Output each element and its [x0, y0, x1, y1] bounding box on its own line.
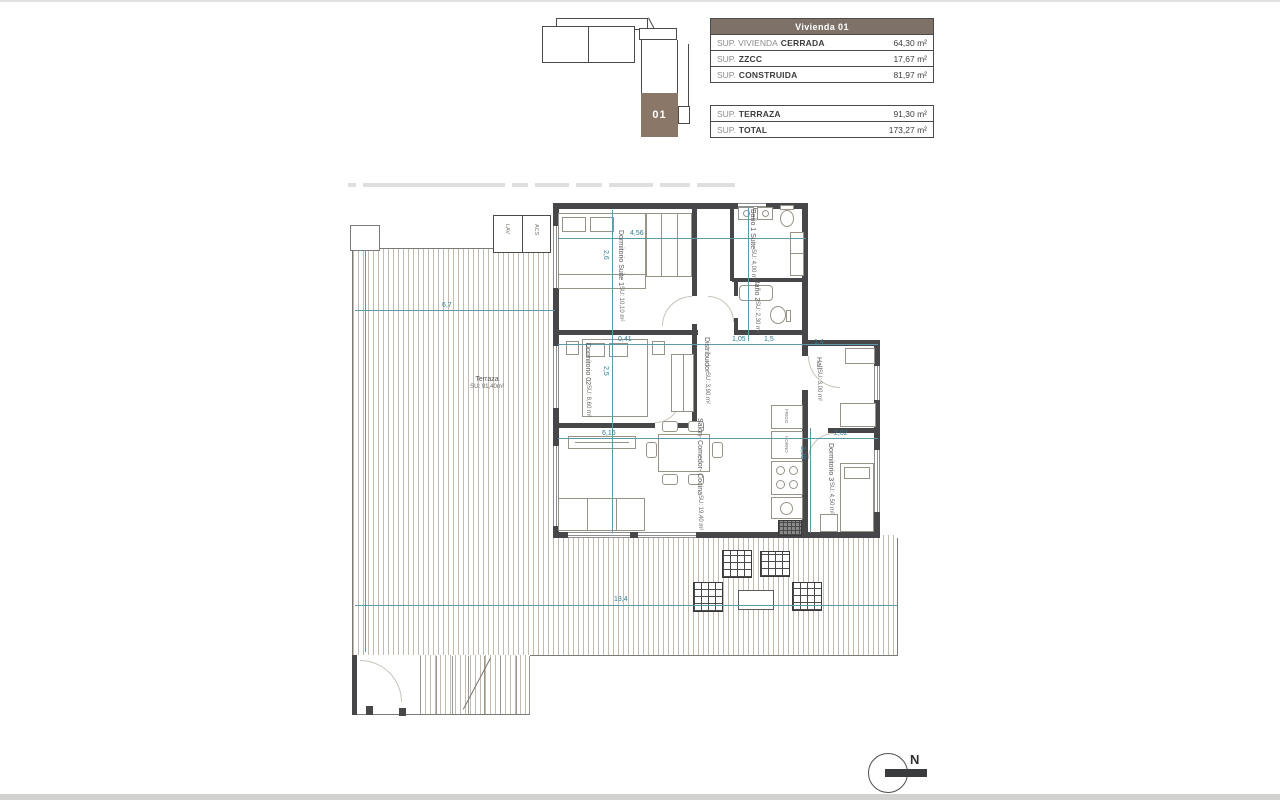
terrace-planter	[760, 551, 790, 577]
wardrobe-dorm02	[671, 354, 694, 412]
wall-segment	[553, 423, 655, 428]
glass-door	[638, 532, 696, 538]
terrace-table	[738, 590, 774, 610]
table-row: SUP. TERRAZA 91,30 m²	[711, 106, 933, 121]
key-plan-unit-label: 01	[652, 109, 666, 121]
table-row: SUP. VIVIENDA CERRADA 64,30 m²	[711, 34, 933, 50]
dimension-line	[365, 250, 366, 652]
utility-closet: LAV ACS	[493, 215, 551, 253]
terrace-edge-right	[897, 538, 898, 656]
window	[874, 450, 880, 512]
area-table-main: Vivienda 01 SUP. VIVIENDA CERRADA 64,30 …	[710, 18, 934, 83]
north-arrow-bar	[885, 769, 927, 777]
dining-chair	[712, 442, 723, 458]
row-label: CERRADA	[781, 38, 825, 48]
wall-segment	[734, 282, 738, 296]
area-table-totals: SUP. TERRAZA 91,30 m² SUP. TOTAL 173,27 …	[710, 105, 934, 138]
window	[874, 366, 880, 400]
wall-segment	[734, 330, 808, 335]
row-label: CONSTRUIDA	[739, 70, 798, 80]
area-table: Vivienda 01 SUP. VIVIENDA CERRADA 64,30 …	[710, 18, 934, 138]
floor-plan: LAV ACS	[340, 178, 916, 744]
plan-sheet: { "sheet": {"title": "Vivienda 01"}, "ke…	[0, 0, 1280, 800]
page-bottom-edge	[0, 794, 1280, 800]
row-value: 91,30 m²	[893, 109, 927, 119]
room-label-dormitorio02: Dormitorio 02 SU: 8,60 m²	[583, 340, 591, 420]
hall-closet	[845, 348, 875, 364]
row-prefix: SUP.	[717, 70, 736, 80]
dining-chair	[662, 421, 678, 432]
gate-post	[399, 708, 406, 716]
room-label-salon-comedor-cocina: Salón- Comedor- Cocina SU: 19,40 m²	[695, 420, 703, 528]
row-value: 17,67 m²	[893, 54, 927, 64]
hall-bench	[840, 403, 876, 427]
room-label-dormitorio-suite1: Dormitorio Suite 1 SU: 10,10 m²	[616, 218, 624, 333]
terrace-planter	[792, 582, 822, 611]
north-label: N	[910, 752, 919, 767]
wall-segment	[802, 346, 808, 356]
row-prefix: SUP. VIVIENDA	[717, 38, 778, 48]
row-prefix: SUP.	[717, 125, 736, 135]
row-value: 81,97 m²	[893, 70, 927, 80]
terrace-planter	[722, 550, 752, 578]
terrace-planter	[693, 582, 723, 612]
bed-dorm3	[840, 463, 874, 532]
row-label: TERRAZA	[739, 109, 781, 119]
area-table-header: Vivienda 01	[711, 19, 933, 34]
key-plan-block-divider	[588, 26, 589, 63]
row-label: ZZCC	[739, 54, 762, 64]
bath2-toilet	[770, 306, 786, 324]
key-plan-unit-01: 01	[641, 93, 678, 137]
room-label-dormitorio3: Dormitorio 3 SU: 4,50 m²	[826, 436, 834, 521]
window	[568, 532, 630, 538]
table-row: SUP. CONSTRUIDA 81,97 m²	[711, 66, 933, 82]
dimension-label: 0,41	[618, 336, 632, 343]
terrace-edge-left	[352, 248, 353, 715]
dimension-line	[558, 238, 806, 239]
terrace-edge-bottom-low	[352, 714, 530, 715]
dimension-label: 1,4	[814, 339, 824, 346]
bed-dorm02	[582, 339, 648, 417]
dimension-label: 13,4	[614, 596, 628, 603]
dimension-line	[355, 605, 898, 606]
dimension-label: 6,16	[602, 430, 616, 437]
dimension-label: 2,6	[602, 250, 609, 260]
dimension-label: 1,5	[764, 336, 774, 343]
wall-segment	[352, 655, 357, 715]
wardrobe-suite1	[646, 213, 692, 277]
dimension-line	[810, 428, 811, 533]
wall-segment	[553, 330, 698, 335]
dining-chair	[646, 442, 657, 458]
dimension-label: 4,56	[630, 230, 644, 237]
dimension-label: 2,5	[602, 366, 609, 376]
wall-segment	[730, 203, 734, 281]
dimension-label: 1,05	[732, 336, 746, 343]
key-plan-unit-annex	[678, 106, 690, 124]
dining-chair	[662, 474, 678, 485]
fridge-label: FRIGO	[784, 409, 789, 423]
room-label-bano2: Baño 2 SU: 2,30 m²	[752, 278, 760, 334]
page-top-edge	[0, 0, 1280, 2]
dimension-line	[558, 344, 878, 345]
row-prefix: SUP.	[717, 109, 736, 119]
bath1-sink	[757, 207, 773, 220]
key-plan: 01	[530, 14, 705, 140]
row-prefix: SUP.	[717, 54, 736, 64]
kitchen-sink	[771, 497, 803, 519]
wall-segment	[692, 203, 697, 296]
key-plan-wing-line-right	[677, 40, 678, 93]
row-value: 64,30 m²	[893, 38, 927, 48]
room-label-distribuidor: Distribuidor SU: 3,90 m²	[702, 328, 710, 413]
sofa	[558, 498, 645, 531]
closet-label-lav: LAV	[504, 224, 509, 234]
cooktop	[771, 461, 803, 495]
bath2-toilet-tank	[786, 310, 791, 322]
faint-annotation-row	[348, 183, 908, 189]
dimension-line	[355, 310, 555, 311]
window	[553, 346, 559, 408]
terrace-corner-box	[350, 225, 380, 251]
dimension-line	[612, 210, 613, 532]
room-label-terraza: Terraza SU: 91,40m²	[445, 376, 529, 391]
closet-label-acs: ACS	[533, 224, 538, 235]
dimension-label: 2,02	[834, 430, 848, 437]
dimension-label: 3,35	[799, 446, 806, 460]
terrace-edge-bottom	[530, 655, 898, 656]
table-row: SUP. ZZCC 17,67 m²	[711, 50, 933, 66]
row-value: 173,27 m²	[889, 125, 927, 135]
key-plan-upper-right-block	[639, 28, 677, 40]
wall-segment	[732, 278, 808, 282]
kitchen-paved-square	[778, 520, 802, 536]
table-row: SUP. TOTAL 173,27 m²	[711, 121, 933, 137]
bath1-toilet	[780, 210, 794, 227]
north-compass: N	[864, 746, 936, 798]
dimension-label: 6,7	[442, 302, 452, 309]
room-label-hall: Hall SU: 3,00 m²	[814, 350, 822, 408]
gate-post	[366, 706, 373, 715]
room-label-bano1-suite: Baño 1 Suite SU: 4,00 m²	[748, 210, 756, 280]
row-label: TOTAL	[739, 125, 768, 135]
key-plan-wing-line-left	[641, 40, 642, 93]
